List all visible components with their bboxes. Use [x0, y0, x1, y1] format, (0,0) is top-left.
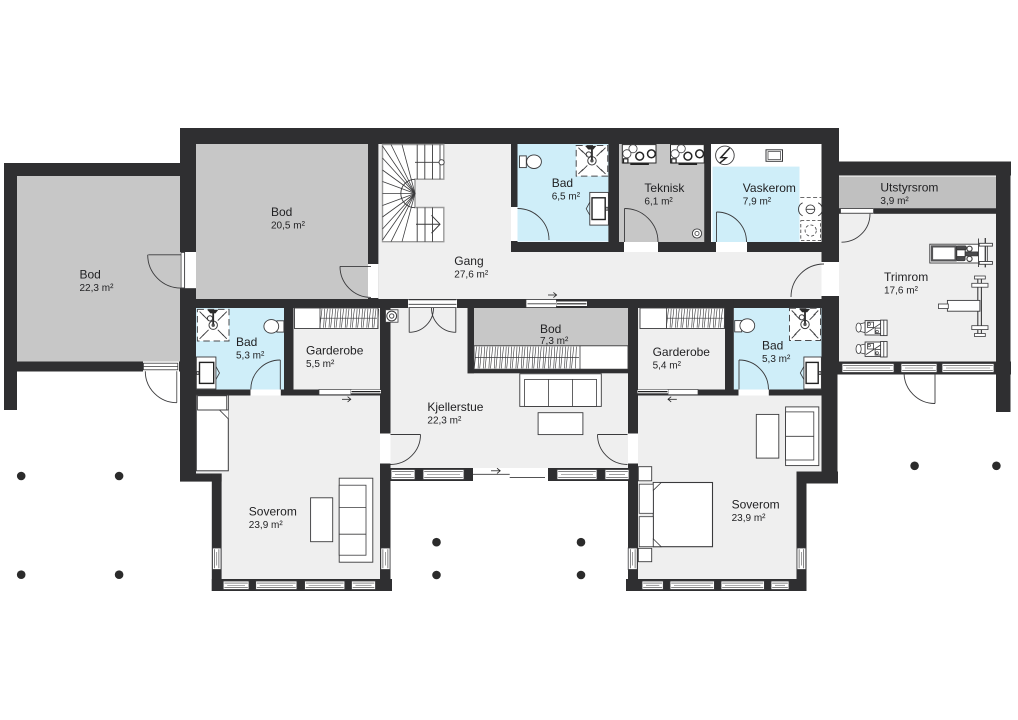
svg-text:3,9 m²: 3,9 m²	[880, 196, 909, 207]
svg-text:Garderobe: Garderobe	[653, 345, 711, 359]
svg-text:Bad: Bad	[552, 176, 573, 190]
svg-text:Soverom: Soverom	[732, 498, 780, 512]
svg-text:Soverom: Soverom	[249, 505, 297, 519]
svg-text:22,3 m²: 22,3 m²	[427, 415, 462, 426]
svg-text:17,6 m²: 17,6 m²	[884, 285, 919, 296]
svg-text:22,3 m²: 22,3 m²	[80, 283, 115, 294]
svg-text:Utstyrsrom: Utstyrsrom	[880, 181, 938, 195]
svg-text:7,9 m²: 7,9 m²	[743, 197, 772, 208]
svg-text:Vaskerom: Vaskerom	[743, 181, 796, 195]
svg-text:5,4 m²: 5,4 m²	[653, 360, 682, 371]
svg-text:Kjellerstue: Kjellerstue	[427, 400, 483, 414]
svg-text:23,9 m²: 23,9 m²	[249, 520, 284, 531]
svg-text:20,5 m²: 20,5 m²	[271, 220, 306, 231]
svg-text:Bod: Bod	[271, 205, 292, 219]
svg-text:Trimrom: Trimrom	[884, 270, 928, 284]
svg-text:Garderobe: Garderobe	[306, 344, 364, 358]
svg-text:Gang: Gang	[454, 254, 483, 268]
svg-text:Bad: Bad	[762, 339, 783, 353]
svg-text:7,3 m²: 7,3 m²	[540, 336, 569, 347]
svg-text:23,9 m²: 23,9 m²	[732, 513, 767, 524]
svg-text:27,6 m²: 27,6 m²	[454, 270, 489, 281]
svg-text:6,1 m²: 6,1 m²	[644, 197, 673, 208]
svg-text:5,3 m²: 5,3 m²	[236, 350, 265, 361]
svg-text:Bod: Bod	[80, 268, 101, 282]
svg-text:Teknisk: Teknisk	[644, 181, 685, 195]
svg-text:Bod: Bod	[540, 322, 561, 336]
svg-text:5,5 m²: 5,5 m²	[306, 359, 335, 370]
svg-text:6,5 m²: 6,5 m²	[552, 191, 581, 202]
svg-text:Bad: Bad	[236, 335, 257, 349]
svg-text:5,3 m²: 5,3 m²	[762, 354, 791, 365]
